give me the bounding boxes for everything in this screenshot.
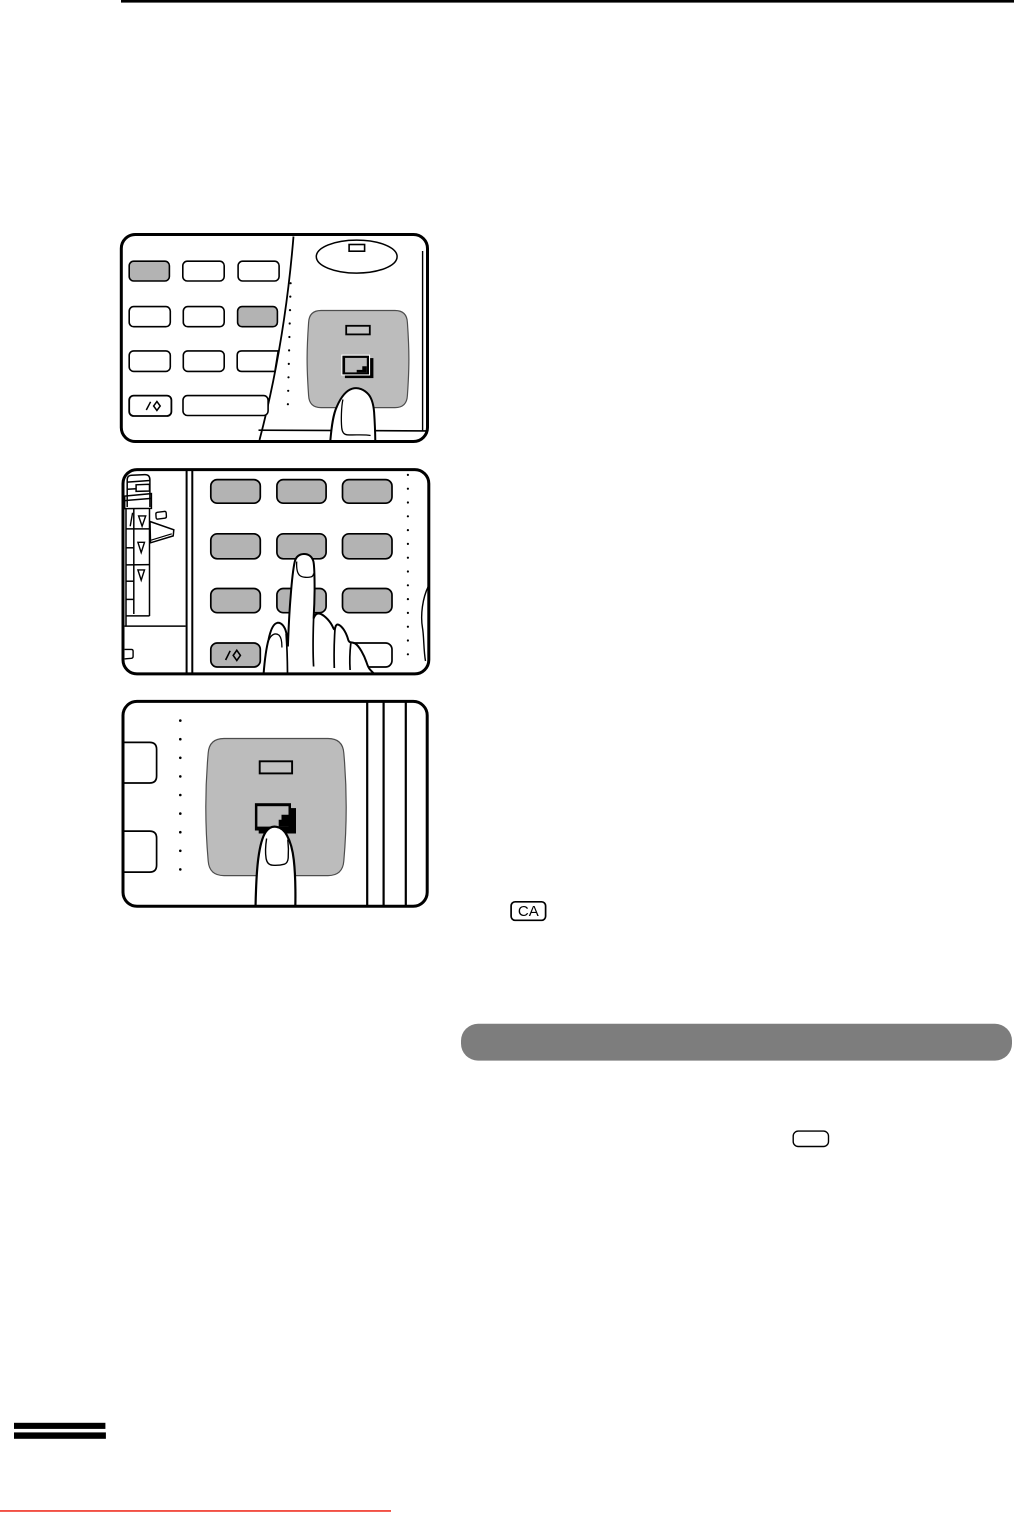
svg-text:CA: CA <box>518 903 539 920</box>
